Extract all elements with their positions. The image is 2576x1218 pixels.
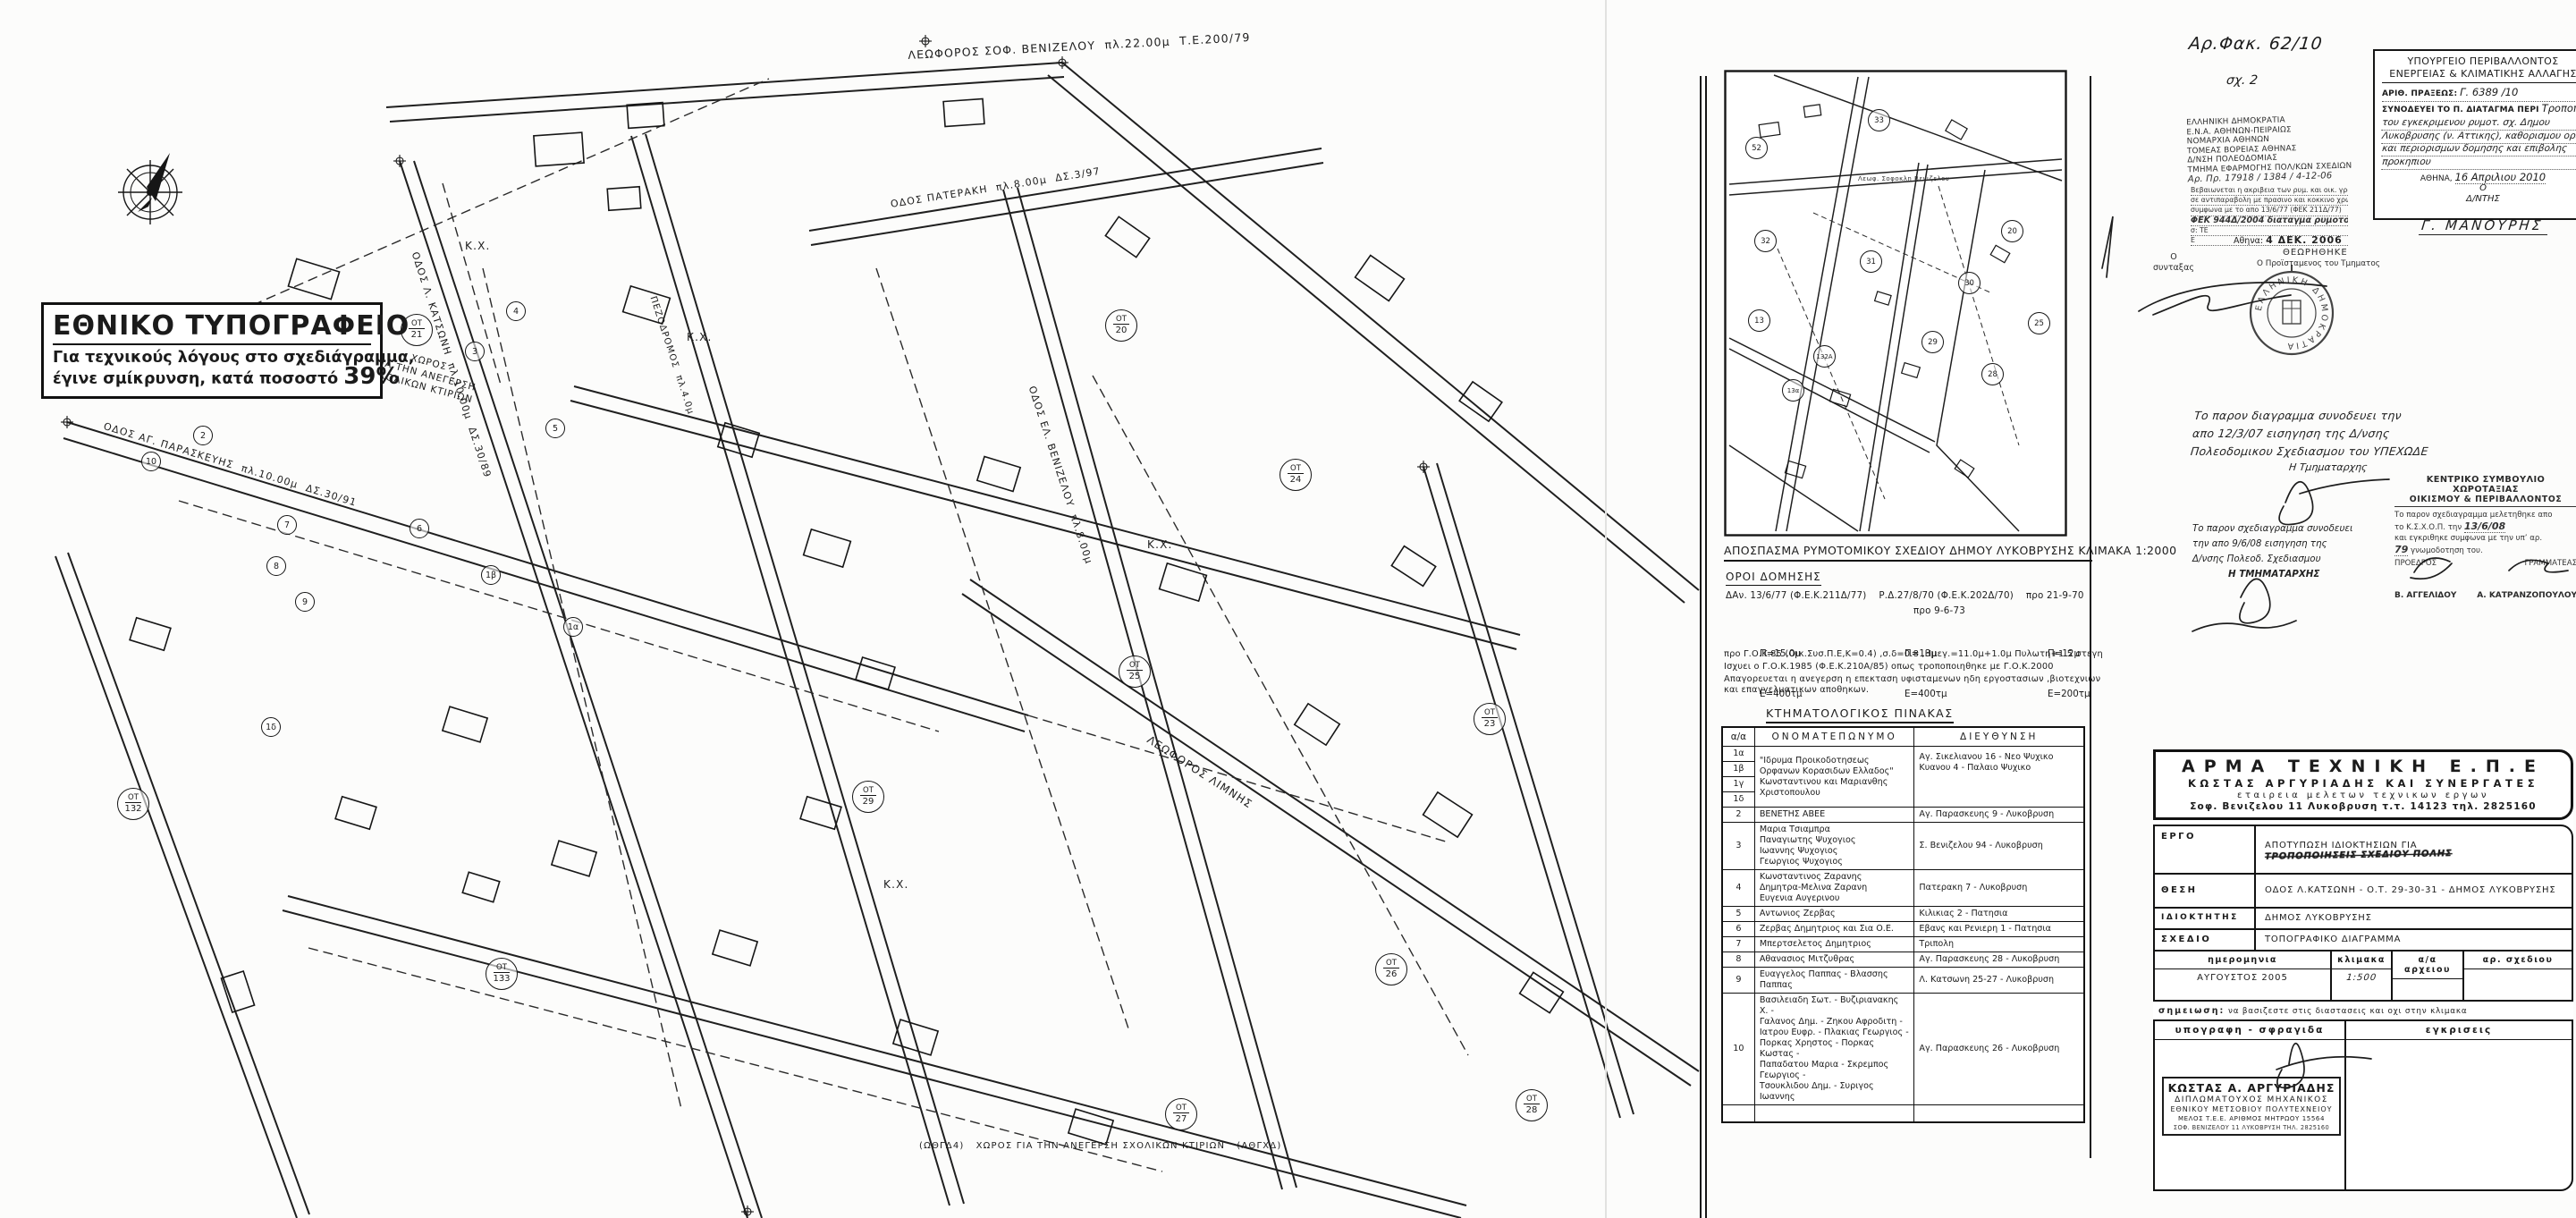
council-opinion-number: 79 (2394, 544, 2408, 556)
reduction-title: ΕΘΝΙΚΟ ΤΥΠΟΓΡΑΦΕΙΟ (53, 310, 371, 345)
owner-address-cell: Κιλικιας 2 - Πατησια (1914, 907, 2084, 922)
note2-line: την απο 9/6/08 εισηγηση της (2192, 537, 2352, 552)
council-role-president: ΠΡΟΕΔΡΟΣ (2394, 559, 2437, 568)
inset-block-circle: 29 (1921, 331, 1944, 353)
parcel-number-circle: 7 (277, 515, 297, 535)
row-id-cell (1722, 1105, 1754, 1123)
ministry-date: 16 Απριλιου 2010 (2455, 171, 2546, 184)
ministry-approval-box: ΥΠΟΥΡΓΕΙΟ ΠΕΡΙΒΑΛΛΟΝΤΟΣ ΕΝΕΡΓΕΙΑΣ & ΚΛΙΜ… (2373, 49, 2576, 220)
cadastral-table-title: ΚΤΗΜΑΤΟΛΟΓΙΚΟΣ ΠΙΝΑΚΑΣ (1766, 706, 1954, 723)
block-prefix: ΟΤ (1383, 960, 1399, 968)
terms-line4: Ισχυει ο Γ.Ο.Κ.1985 (Φ.Ε.Κ.210Α/85) οπως… (1724, 662, 2054, 672)
inset-block-circle: 31 (1860, 250, 1882, 273)
block-prefix: ΟΤ (409, 320, 425, 329)
block-number-circle: ΟΤ25 (1119, 656, 1151, 688)
dimension-note: σημειωση: να βασιζεστε στις διαστασεις κ… (2153, 1002, 2573, 1019)
cadastral-row: 10Βασιλειαδη Σωτ. - Βυζιριανακης Χ. - Γα… (1722, 994, 2084, 1105)
company-name: ΑΡΜΑ ΤΕΧΝΙΚΗ Ε.Π.Ε (2159, 757, 2567, 776)
praxis-number: Γ. 6389 /10 (2460, 86, 2518, 98)
owner-name-cell: Αθανασιος Μιτζυθρας (1754, 952, 1914, 968)
owner-name-cell (1754, 1105, 1914, 1123)
date-stamp: 4 ΔΕΚ. 2006 (2266, 234, 2343, 246)
row-ergo: ΕΡΓΟ ΑΠΟΤΥΠΩΣΗ ΙΔΙΟΚΤΗΣΙΩΝ ΓΙΑ ΤΡΟΠΟΠΟΙΗ… (2155, 826, 2572, 875)
sheet-number-note: σχ. 2 (2225, 73, 2259, 88)
reduction-note-box: ΕΘΝΙΚΟ ΤΥΠΟΓΡΑΦΕΙΟ Για τεχνικούς λόγους … (41, 302, 383, 399)
parcel-number-circle: 1δ (261, 717, 281, 737)
terms-line3: προ Γ.Ο.Κ.85 (Οικ.Συσ.Π.Ε,Κ=0.4) ,σ.δ=0.… (1724, 649, 2103, 659)
cadastral-row: 5Αντωνιος ΖερβαςΚιλικιας 2 - Πατησια (1722, 907, 2084, 922)
block-number: 132 (124, 803, 141, 814)
nomarchia-stamp: ΕΛΛΗΝΙΚΗ ΔΗΜΟΚΡΑΤΙΑΕ.Ν.Α. ΑΘΗΝΩΝ-ΠΕΙΡΑΙΩ… (2186, 114, 2352, 185)
owner-name-cell: ΒΕΝΕΤΗΣ ΑΒΕΕ (1754, 808, 1914, 823)
department-head-label: Ο Προϊσταμενος του Τμηματος (2257, 259, 2380, 268)
cadastral-row: 9Ευαγγελος Παππας - Βλασσης ΠαππαςΛ. Κατ… (1722, 968, 2084, 994)
inset-block-circle: 25 (2028, 312, 2050, 334)
verification-date: Αθηνα: 4 ΔΕΚ. 2006 (2234, 234, 2343, 246)
group-ids-cell: 1α1β1γ1δ (1722, 747, 1754, 808)
street-label: Κ.Χ. (687, 331, 713, 343)
row-thesi: ΘΕΣΗ ΟΔΟΣ Λ.ΚΑΤΣΩΝΗ - Ο.Τ. 29-30-31 - ΔΗ… (2155, 875, 2572, 909)
decree-handwritten-line: του εγκεκριμενου ρυμοτ. σχ. Δημου (2381, 117, 2576, 131)
terms-line1: ΔΑν. 13/6/77 (Φ.Ε.Κ.211Δ/77) Ρ.Δ.27/8/70… (1726, 590, 2084, 601)
owner-name-cell: Μαρια Τσιαμπρα Παναγιωτης Ψυχογιος Ιωανν… (1754, 823, 1914, 870)
title-block: ΑΡΜΑ ΤΕΧΝΙΚΗ Ε.Π.Ε ΚΩΣΤΑΣ ΑΡΓΥΡΙΑΔΗΣ ΚΑΙ… (2153, 749, 2573, 1191)
drawing-number-value (2464, 969, 2572, 990)
block-number-circle: ΟΤ20 (1105, 309, 1137, 342)
ministry-decree-lines: του εγκεκριμενου ρυμοτ. σχ. ΔημουΛυκοβρυ… (2382, 117, 2576, 169)
block-number: 26 (1386, 968, 1398, 979)
block-number: 25 (1129, 671, 1141, 681)
owner-name-cell: Ζερβας Δημητριος και Σια Ο.Ε. (1754, 922, 1914, 937)
cadastral-header-cell: ΔΙΕΥΘΥΝΣΗ (1914, 727, 2084, 747)
note2-line: Δ/νσης Πολεοδ. Σχεδιασμου (2192, 552, 2352, 567)
street-label: ΛΕΩΦΟΡΟΣ ΛΙΜΝΗΣ (1144, 733, 1254, 811)
reduction-percent: 39% (343, 363, 399, 390)
parcel-number-circle: 4 (506, 301, 526, 321)
owner-address-cell: Πατερακη 7 - Λυκοβρυση (1914, 870, 2084, 907)
group-id: 1β (1723, 762, 1754, 777)
inset-block-circle: 30 (1958, 272, 1981, 294)
decree-handwritten-line: Λυκοβρυσης (ν. Αττικης), καθορισμου ορων (2381, 131, 2576, 144)
block-prefix: ΟΤ (1288, 465, 1304, 474)
owner-address-cell: Αγ. Παρασκευης 26 - Λυκοβρυση (1914, 994, 2084, 1105)
ministry-title2: ΕΝΕΡΓΕΙΑΣ & ΚΛΙΜΑΤΙΚΗΣ ΑΛΛΑΓΗΣ (2382, 68, 2576, 83)
owner-address-cell: Αγ. Παρασκευης 28 - Λυκοβρυση (1914, 952, 2084, 968)
council-date: 13/6/08 (2464, 520, 2505, 533)
reduction-line1: Για τεχνικούς λόγους στο σχεδιάγραμμα, (53, 349, 371, 368)
archive-number-value (2393, 979, 2462, 1000)
block-number: 28 (1526, 1104, 1538, 1115)
decree-handwritten-line: και περιορισμων δομησης και επιβολης (2381, 143, 2576, 156)
council-stamp: ΚΕΝΤΡΙΚΟ ΣΥΜΒΟΥΛΙΟ ΧΩΡΟΤΑΞΙΑΣ ΟΙΚΙΣΜΟΥ &… (2394, 475, 2576, 600)
handwritten-note-1: Το παρον διαγραμμα συνοδευει τηναπο 12/3… (2190, 407, 2433, 461)
block-number-circle: ΟΤ24 (1280, 459, 1312, 491)
parcel-number-circle: 6 (410, 519, 429, 538)
owner-address-cell: Αγ. Σικελιανου 16 - Νεο Ψυχικο Κυανου 4 … (1914, 747, 2084, 808)
row-id-cell: 4 (1722, 870, 1754, 907)
cadastral-row: 6Ζερβας Δημητριος και Σια Ο.Ε.Εβανς και … (1722, 922, 2084, 937)
street-label: ΟΔΟΣ ΕΛ. ΒΕΝΙΖΕΛΟΥ πλ.8.00μ (1026, 385, 1095, 566)
row-id-cell: 2 (1722, 808, 1754, 823)
row-id-cell: 5 (1722, 907, 1754, 922)
block-prefix: ΟΤ (1482, 709, 1498, 718)
council-role-secretary: ΓΡΑΜΜΑΤΕΑΣ (2524, 559, 2576, 568)
block-number: 27 (1176, 1113, 1187, 1124)
reduction-line2: έγινε σμίκρυνση, κατά ποσοστό 39% (53, 368, 371, 389)
inset-block-circle: 28 (1981, 363, 2004, 385)
cadastral-header-cell: α/α (1722, 727, 1754, 747)
verify-line: Βεβαιωνεται η ακριβεια των ρυμ. και οικ.… (2191, 186, 2348, 196)
ministry-title1: ΥΠΟΥΡΓΕΙΟ ΠΕΡΙΒΑΛΛΟΝΤΟΣ (2382, 55, 2576, 68)
director-signature-name: Γ. ΜΑΝΟΥΡΗΣ (2419, 217, 2549, 235)
inset-block-circle: 13 (1748, 309, 1770, 332)
council-secretary-name: Α. ΚΑΤΡΑΝΖΟΠΟΥΛΟΥ (2477, 591, 2576, 600)
date-value: ΑΥΓΟΥΣΤΟΣ 2005 (2155, 969, 2330, 990)
panel-divider-left-b (1705, 76, 1707, 1218)
row-sxedio: ΣΧΕΔΙΟ ΤΟΠΟΓΡΑΦΙΚΟ ΔΙΑΓΡΑΜΜΑ (2155, 930, 2572, 950)
building-terms-heading: ΟΡΟΙ ΔΟΜΗΣΗΣ (1726, 571, 1821, 586)
signature-table: υπογραφη - σφραγιδα ΚΩΣΤΑΣ Α. ΑΡΓΥΡΙΑΔΗΣ… (2153, 1019, 2573, 1191)
terms-col3: Π=12μ Ε=200τμ (2048, 621, 2090, 715)
inset-block-circle: 132Α (1813, 345, 1836, 368)
owner-address-cell: Σ. Βενιζελου 94 - Λυκοβρυση (1914, 823, 2084, 870)
cadastral-group-row: 1α1β1γ1δ"Ιδρυμα Προικοδοτησεως Ορφανων Κ… (1722, 747, 2084, 808)
owner-address-cell: Αγ. Παρασκευης 9 - Λυκοβρυση (1914, 808, 2084, 823)
parcel-number-circle: 1α (563, 617, 583, 637)
block-number-circle: ΟΤ27 (1165, 1098, 1197, 1130)
cadastral-row: 4Κωνσταντινος Ζαρανης Δημητρα-Μελινα Ζαρ… (1722, 870, 2084, 907)
folder-number-note: Αρ.Φακ. 62/10 (2188, 34, 2324, 54)
inset-block-circle: 32 (1754, 230, 1777, 252)
block-number: 133 (493, 973, 510, 984)
note1-line: απο 12/3/07 εισηγηση της Δ/νσης (2192, 425, 2431, 443)
ministry-praxis-row: ΑΡΙΘ. ΠΡΑΞΕΩΣ: Γ. 6389 /10 (2382, 86, 2576, 102)
owner-name-cell: Κωνσταντινος Ζαρανης Δημητρα-Μελινα Ζαρα… (1754, 870, 1914, 907)
owner-name-cell: Βασιλειαδη Σωτ. - Βυζιριανακης Χ. - Γαλα… (1754, 994, 1914, 1105)
street-label: Κ.Χ. (465, 240, 491, 252)
round-state-stamp: ΕΛΛΗΝΙΚΗ ΔΗΜΟΚΡΑΤΙΑ (2251, 265, 2333, 354)
block-prefix: ΟΤ (494, 964, 510, 973)
scanned-topographic-sheet: { "reduction_box": { "title": "ΕΘΝΙΚΟ ΤΥ… (0, 0, 2576, 1218)
ministry-decree-row: ΣΥΝΟΔΕΥΕΙ ΤΟ Π. ΔΙΑΤΑΓΜΑ ΠΕΡΙ Τροποποιησ… (2382, 102, 2576, 117)
owner-name-cell: Μπερτσελετος Δημητριος (1754, 937, 1914, 952)
cadastral-row: 7Μπερτσελετος ΔημητριοςΤριπολη (1722, 937, 2084, 952)
parcel-number-circle: 9 (295, 592, 315, 612)
inset-title: ΑΠΟΣΠΑΣΜΑ ΡΥΜΟΤΟΜΙΚΟΥ ΣΧΕΔΙΟΥ ΔΗΜΟΥ ΛΥΚΟ… (1724, 544, 2092, 562)
owner-address-cell: Λ. Κατσωνη 25-27 - Λυκοβρυση (1914, 968, 2084, 994)
owner-name-cell: Ευαγγελος Παππας - Βλασσης Παππας (1754, 968, 1914, 994)
cadastral-row: 2ΒΕΝΕΤΗΣ ΑΒΕΕΑγ. Παρασκευης 9 - Λυκοβρυσ… (1722, 808, 2084, 823)
group-id: 1δ (1723, 792, 1754, 807)
approved-label: ΘΕΩΡΗΘΗΚΕ (2283, 248, 2348, 258)
parcel-number-circle: 2 (193, 426, 213, 445)
note1-line: Το παρον διαγραμμα συνοδευει την (2193, 407, 2433, 425)
owner-address-cell: Εβανς και Ρενιερη 1 - Πατησια (1914, 922, 2084, 937)
row-id-cell: 7 (1722, 937, 1754, 952)
street-label: ΟΔΟΣ ΠΑΤΕΡΑΚΗ πλ.8.00μ ΔΣ.3/97 (890, 165, 1102, 210)
inset-block-circle: 20 (2001, 220, 2023, 242)
row-id-cell: 3 (1722, 823, 1754, 870)
terms-line6: και επαγγελματικων αποθηκων. (1724, 685, 1869, 695)
street-label: Κ.Χ. (883, 878, 909, 891)
inset-block-circle: 13α (1782, 379, 1804, 402)
inset-street-label: Λεωφ. Σοφοκλη Βενιζελου (1858, 175, 1949, 182)
row-id-cell: 8 (1722, 952, 1754, 968)
cadastral-row: 8Αθανασιος ΜιτζυθραςΑγ. Παρασκευης 28 - … (1722, 952, 2084, 968)
parcel-number-circle: 3 (465, 342, 485, 361)
row-id-cell: 6 (1722, 922, 1754, 937)
street-label: ΟΔΟΣ ΑΓ. ΠΑΡΑΣΚΕΥΗΣ πλ.10.00μ ΔΣ.30/91 (102, 420, 359, 509)
council-president-name: Β. ΑΓΓΕΛΙΔΟΥ (2394, 591, 2456, 600)
block-number-circle: ΟΤ26 (1375, 953, 1407, 985)
svg-text:ΕΛΛΗΝΙΚΗ ΔΗΜΟΚΡΑΤΙΑ: ΕΛΛΗΝΙΚΗ ΔΗΜΟΚΡΑΤΙΑ (2254, 275, 2329, 351)
street-label: ΛΕΩΦΟΡΟΣ ΣΟΦ. ΒΕΝΙΖΕΛΟΥ πλ.22.00μ Τ.Ε.20… (908, 30, 1251, 62)
block-number-circle: ΟΤ133 (486, 958, 518, 990)
verify-line: σε αντιπαραβολη με πρασινο και κοκκινο χ… (2191, 196, 2348, 206)
block-prefix: ΟΤ (1113, 316, 1129, 325)
note2-line: Το παρον σχεδιαγραμμα συνοδευει (2192, 521, 2352, 537)
verify-line: συμφωνα με το απο 13/6/77 (ΦΕΚ 211Δ/77) (2191, 206, 2348, 216)
scale-value: 1:500 (2331, 969, 2392, 990)
company-header: ΑΡΜΑ ΤΕΧΝΙΚΗ Ε.Π.Ε ΚΩΣΤΑΣ ΑΡΓΥΡΙΑΔΗΣ ΚΑΙ… (2153, 749, 2573, 820)
owner-address-cell: Τριπολη (1914, 937, 2084, 952)
parcel-number-circle: 8 (266, 556, 286, 576)
note1-signer: Η Τμηματαρχης (2288, 461, 2368, 473)
block-number: 20 (1116, 325, 1128, 335)
terms-line5: Απαγορευεται η ανεγερση η επεκταση υφιστ… (1724, 674, 2100, 684)
verify-line: ΦΕΚ 944Δ/2004 διαταγμα ρυμοτομιας (2191, 216, 2348, 226)
group-id: 1α (1723, 747, 1754, 762)
main-map-label-layer: ΛΕΩΦΟΡΟΣ ΣΟΦ. ΒΕΝΙΖΕΛΟΥ πλ.22.00μ Τ.Ε.20… (0, 0, 1703, 1218)
owner-name-cell: Αντωνιος Ζερβας (1754, 907, 1914, 922)
street-label: Κ.Χ. (1147, 538, 1173, 551)
block-prefix: ΟΤ (1127, 662, 1143, 671)
block-number-circle: ΟΤ29 (852, 781, 884, 813)
block-number: 24 (1290, 474, 1302, 485)
panel-divider-right (2090, 76, 2091, 1158)
bottom-annotation: (ΩΘΓΔ4) ΧΩΡΟΣ ΓΙΑ ΤΗΝ ΑΝΕΓΕΡΣΗ ΣΧΟΛΙΚΩΝ … (919, 1141, 1281, 1151)
drafter-label: Ο συνταξας (2153, 252, 2194, 274)
block-number-circle: ΟΤ23 (1474, 703, 1506, 735)
street-label: ΠΕΖΟΔΡΟΜΟΣ πλ.4.0μ (648, 295, 696, 416)
row-id-cell: 10 (1722, 994, 1754, 1105)
block-number: 21 (411, 329, 423, 340)
terms-line2: προ 9-6-73 (1913, 605, 1965, 616)
inset-map: 33523231203025292813132Α13αΛεωφ. Σοφοκλη… (1724, 70, 2067, 537)
cadastral-row: 3Μαρια Τσιαμπρα Παναγιωτης Ψυχογιος Ιωαν… (1722, 823, 2084, 870)
group-id: 1γ (1723, 777, 1754, 792)
inset-block-circle: 33 (1868, 109, 1890, 131)
decree-handwritten-line: προκηπιου (2381, 156, 2576, 170)
cadastral-header-cell: ΟΝΟΜΑΤΕΠΩΝΥΜΟ (1754, 727, 1914, 747)
block-number: 29 (863, 796, 874, 807)
block-number-circle: ΟΤ28 (1516, 1089, 1548, 1121)
ministry-date-row: ΑΘΗΝΑ, 16 Απριλιου 2010 (2382, 171, 2576, 183)
row-id-cell: 9 (1722, 968, 1754, 994)
inset-map-label-layer: 33523231203025292813132Α13αΛεωφ. Σοφοκλη… (1724, 70, 2067, 537)
ergo-handwritten: ΤΡΟΠΟΠΟΙΗΣΕΙΣ ΣΧΕΔΙΟΥ ΠΟΛΗΣ (2265, 849, 2453, 862)
note2-line: Η ΤΜΗΜΑΤΑΡΧΗΣ (2192, 567, 2352, 582)
block-number: 23 (1484, 718, 1496, 729)
parcel-number-circle: 10 (141, 452, 161, 471)
inset-block-circle: 52 (1745, 137, 1768, 159)
engineer-stamp: ΚΩΣΤΑΣ Α. ΑΡΓΥΡΙΑΔΗΣ ΔΙΠΛΩΜΑΤΟΥΧΟΣ ΜΗΧΑΝ… (2162, 1077, 2341, 1136)
parcel-number-circle: 1β (481, 565, 501, 585)
cadastral-header-row: α/αΟΝΟΜΑΤΕΠΩΝΥΜΟΔΙΕΥΘΥΝΣΗ (1722, 727, 2084, 747)
row-owner: ΙΔΙΟΚΤΗΤΗΣ ΔΗΜΟΣ ΛΥΚΟΒΡΥΣΗΣ (2155, 909, 2572, 930)
block-prefix: ΟΤ (860, 787, 876, 796)
meta-table: ημερομηνια ΑΥΓΟΥΣΤΟΣ 2005 κλιμακα 1:500 … (2153, 952, 2573, 1002)
fold-line (1605, 0, 1607, 1218)
ministry-signer: Ο Δ/ΝΤΗΣ (2382, 183, 2576, 205)
block-prefix: ΟΤ (125, 794, 141, 803)
cadastral-row (1722, 1105, 2084, 1123)
owner-name-cell: "Ιδρυμα Προικοδοτησεως Ορφανων Κορασιδων… (1754, 747, 1914, 808)
parcel-number-circle: 5 (545, 419, 565, 438)
note1-line: Πολεοδομικου Σχεδιασμου του ΥΠΕΧΩΔΕ (2190, 443, 2429, 461)
block-prefix: ΟΤ (1173, 1104, 1189, 1113)
owner-address-cell (1914, 1105, 2084, 1123)
block-prefix: ΟΤ (1524, 1095, 1540, 1104)
panel-divider-left-a (1700, 76, 1702, 1218)
cadastral-table: α/αΟΝΟΜΑΤΕΠΩΝΥΜΟΔΙΕΥΘΥΝΣΗ1α1β1γ1δ"Ιδρυμα… (1721, 726, 2085, 1123)
handwritten-note-2: Το παρον σχεδιαγραμμα συνοδευειτην απο 9… (2192, 521, 2352, 582)
block-number-circle: ΟΤ132 (117, 788, 149, 820)
